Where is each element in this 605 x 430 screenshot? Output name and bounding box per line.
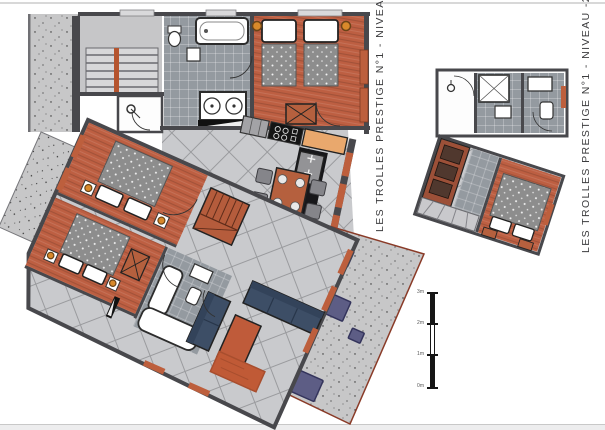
wall-bath-right	[250, 16, 254, 128]
twin-bed2-blanket	[304, 44, 338, 86]
scale-tick	[427, 354, 438, 356]
bathtub-drain-icon	[204, 29, 208, 33]
n2-shower-room	[440, 73, 474, 133]
wall-stair-right	[72, 16, 80, 132]
accent-wall-icon	[561, 86, 566, 108]
scale-label: 2m	[410, 321, 424, 326]
scale-label: 1m	[410, 352, 424, 357]
wall-sink-icon	[187, 48, 200, 61]
basin-right-drain	[232, 104, 235, 107]
window-icon	[206, 10, 236, 16]
plan-sheet: LES TROLLES PRESTIGE N°1 - NIVEAU -1 LES…	[0, 0, 605, 430]
scale-label: 0m	[410, 384, 424, 389]
window-icon	[298, 10, 342, 16]
caption-niveau-2: LES TROLLES PRESTIGE N°1 - NIVEAU -2	[580, 0, 592, 253]
toilet-icon	[540, 102, 553, 119]
niveau2-plan	[415, 70, 567, 254]
stairs-upper-icon	[86, 48, 158, 94]
wall	[474, 73, 477, 133]
wall-sink-icon	[495, 106, 511, 118]
stair-rail-accent	[114, 48, 119, 94]
toilet-bowl-icon	[169, 32, 181, 47]
twin-bed1-blanket	[262, 44, 296, 86]
accent-wall-icon	[360, 50, 368, 84]
scale-seg-3	[430, 355, 435, 388]
caption-niveau-1: LES TROLLES PRESTIGE N°1 - NIVEAU -1	[374, 0, 386, 232]
lamp-icon	[342, 22, 351, 31]
scale-tick	[427, 292, 438, 294]
scale-seg-2	[430, 324, 435, 355]
scale-label: 3m	[410, 290, 424, 295]
twin-bed1-pillow	[262, 20, 296, 42]
niveau2-lower-wing	[415, 136, 564, 254]
scale-seg-1	[430, 293, 435, 324]
basin-left-drain	[210, 104, 213, 107]
shower-cabin-icon	[479, 75, 509, 102]
luggage-rack-icon	[286, 104, 316, 124]
niveau1-top-band	[28, 10, 370, 134]
concrete-edge-left	[28, 14, 31, 132]
lamp-icon	[253, 22, 262, 31]
scale-tick	[427, 323, 438, 325]
scale-tick	[427, 387, 438, 389]
floorplan-canvas	[0, 0, 605, 430]
accent-wall-icon	[360, 88, 368, 122]
window-icon	[120, 10, 154, 16]
wall-bottom-stair	[78, 92, 164, 96]
vanity-icon	[528, 77, 552, 91]
wall	[521, 73, 524, 133]
twin-bed2-pillow	[304, 20, 338, 42]
